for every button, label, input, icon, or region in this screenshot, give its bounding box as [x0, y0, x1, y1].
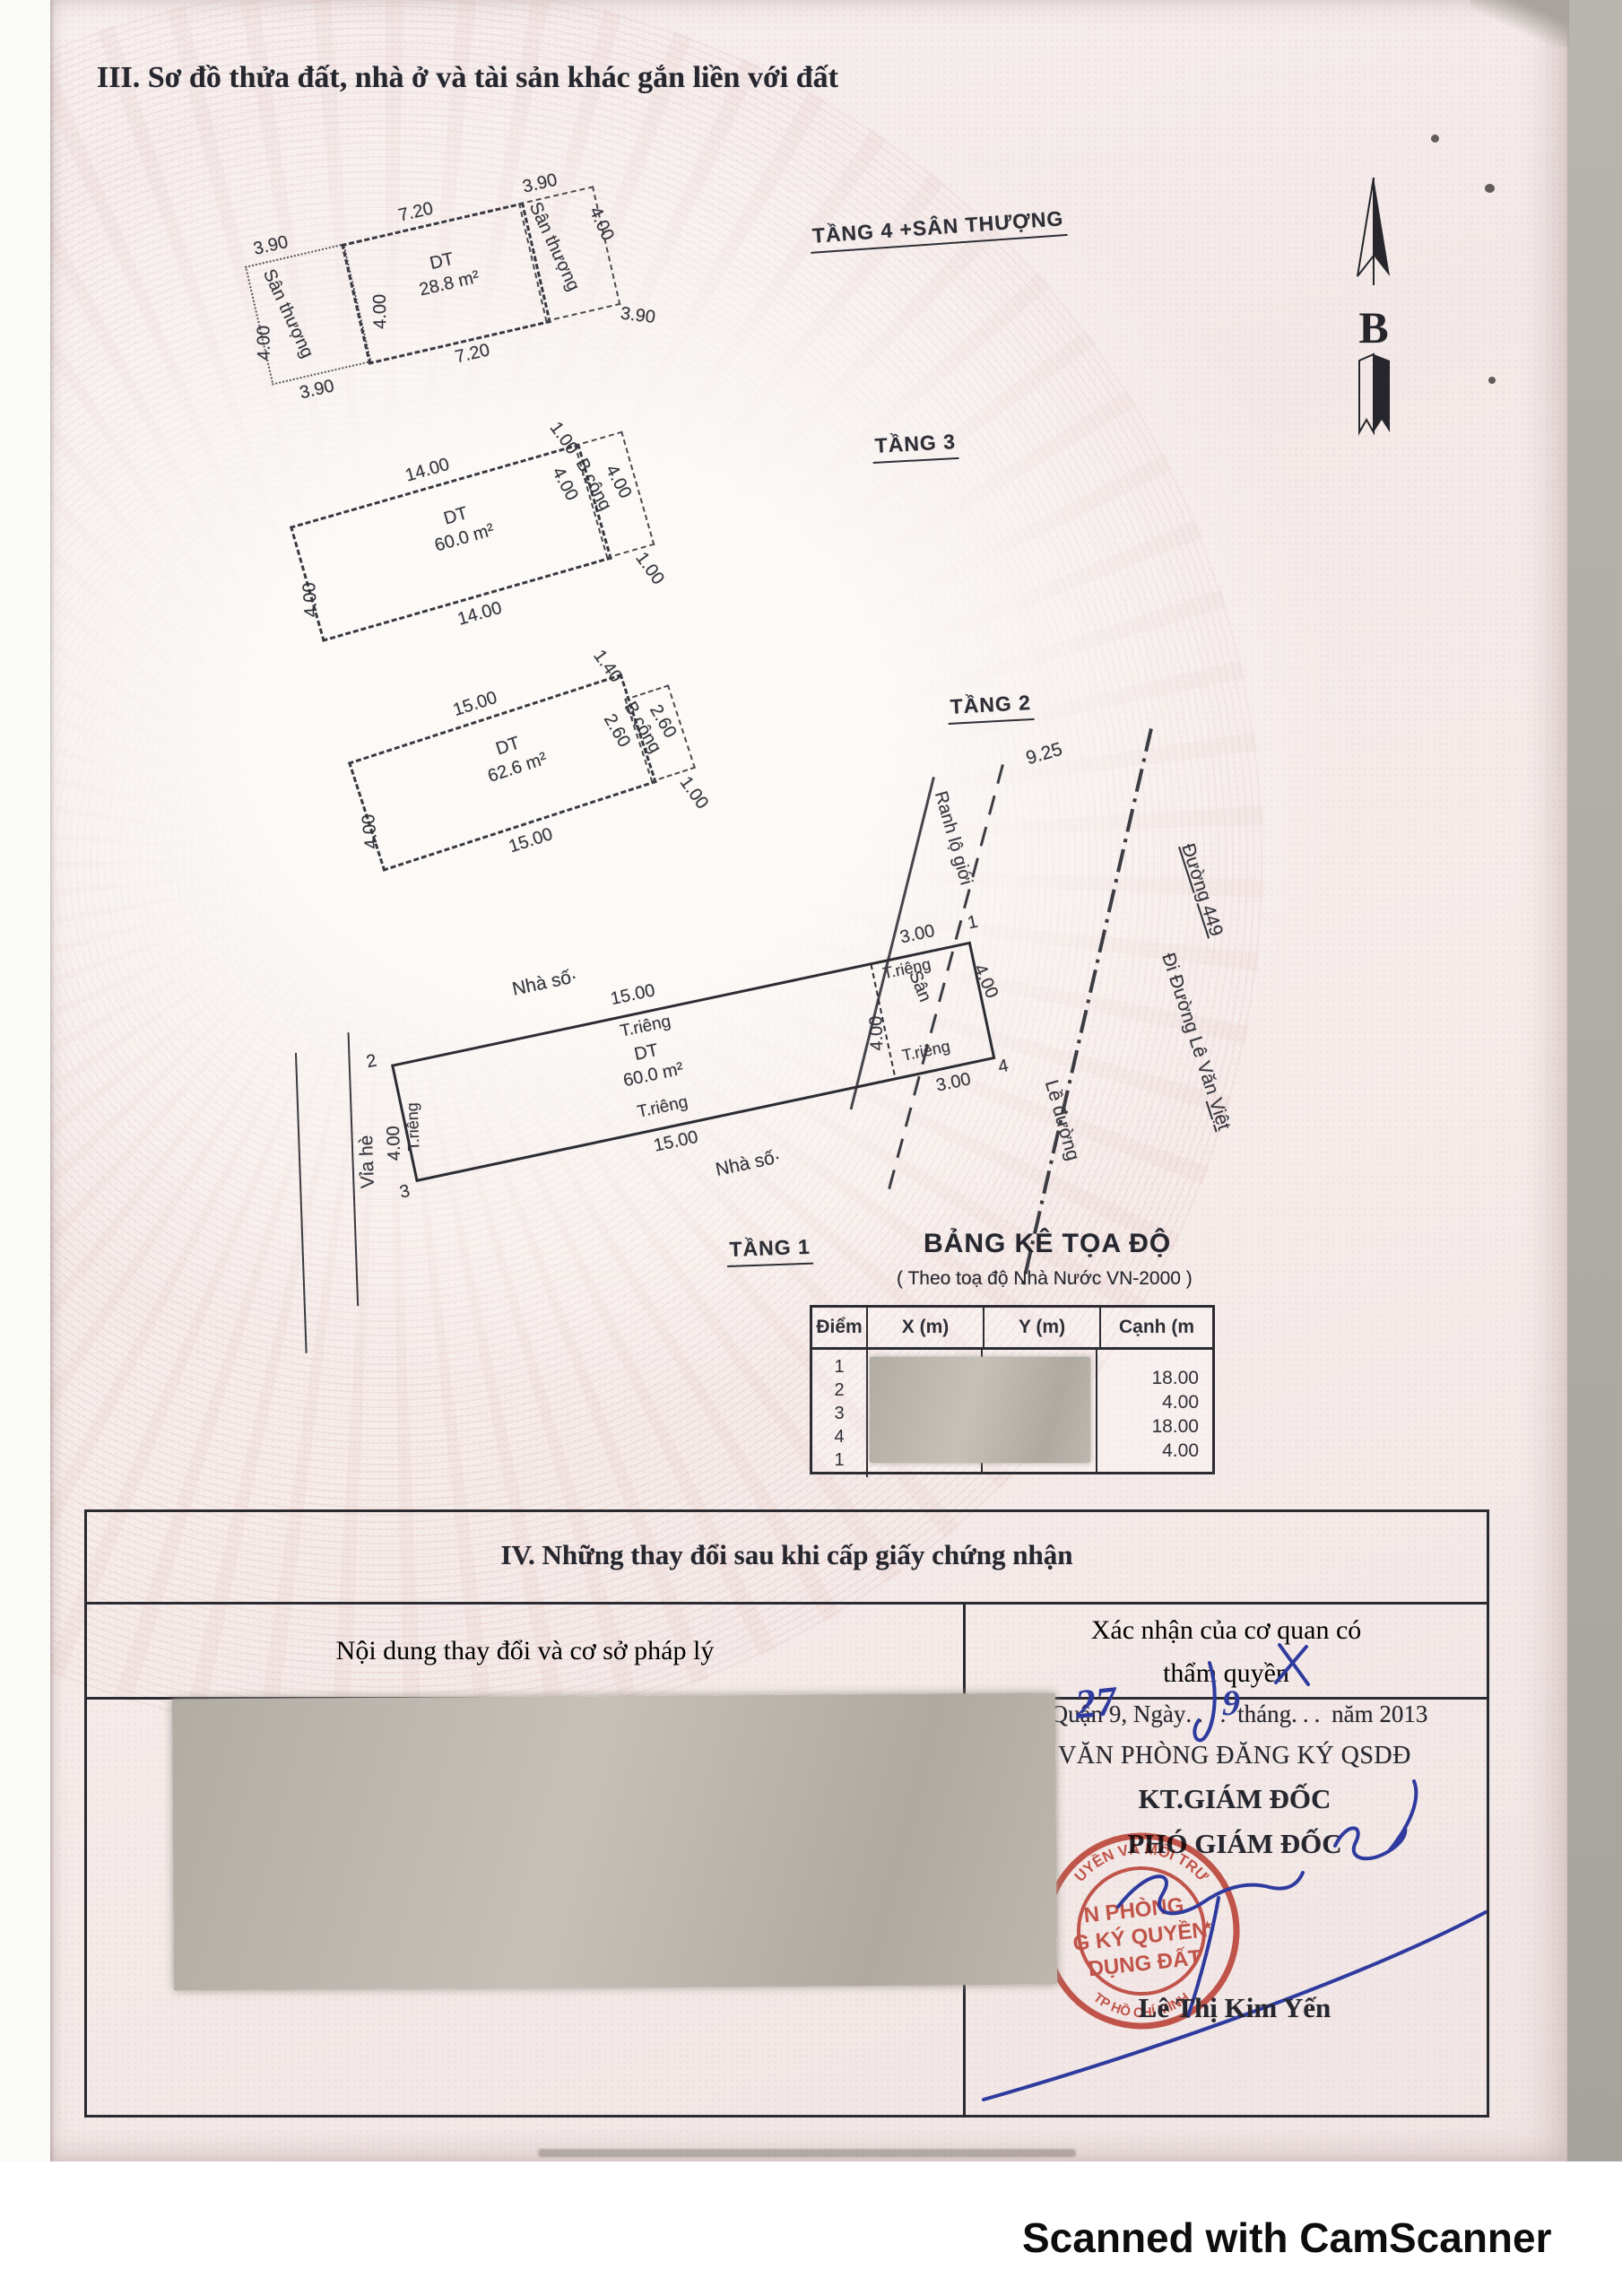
kt-giam-doc-line: KT.GIÁM ĐỐC	[984, 1783, 1486, 1815]
dim-label: 4.00	[867, 1015, 886, 1051]
dim-label: 4.00	[360, 813, 381, 850]
camscanner-band: Scanned with CamScanner	[0, 2161, 1622, 2296]
coord-table-title: BẢNG KÊ TỌA ĐỘ	[924, 1229, 1157, 1259]
area-dt-label: DT	[633, 1041, 660, 1064]
edge-row: 18.00	[1096, 1414, 1199, 1439]
date-suffix: năm 2013	[1331, 1700, 1427, 1727]
signer-name: Lê Thị Kim Yến	[1019, 1992, 1450, 2024]
coord-table-body: 1 2 3 4 1 18.00 4.00 18.00 4.00	[812, 1350, 1212, 1472]
redacted-coordinates	[870, 1357, 1090, 1463]
dim-label: 4.00	[255, 326, 273, 361]
col2-header-line1: Xác nhận của cơ quan có	[966, 1609, 1487, 1652]
tang1-floor-label: TẦNG 1	[726, 1235, 813, 1267]
col1-header: Nội dung thay đổi và cơ sở pháp lý	[87, 1605, 966, 1697]
north-arrow-head-filled	[1374, 178, 1390, 276]
camscanner-watermark: Scanned with CamScanner	[1022, 2213, 1614, 2262]
point-row: 4	[812, 1425, 866, 1448]
north-label: B	[1358, 302, 1388, 352]
point-row: 3	[812, 1402, 866, 1425]
col-header-x: X (m)	[868, 1308, 984, 1347]
point-row: 2	[812, 1378, 866, 1402]
point-numbers: 1 2 3 4 1	[812, 1350, 868, 1477]
section4-title-row: IV. Những thay đổi sau khi cấp giấy chứn…	[87, 1512, 1487, 1605]
edge-row: 4.00	[1096, 1439, 1199, 1463]
office-line: VĂN PHÒNG ĐĂNG KÝ QSDĐ	[984, 1742, 1486, 1770]
scan-corner-shadow	[1470, 0, 1569, 47]
col-header-diem: Điểm	[812, 1308, 868, 1347]
section4-title: IV. Những thay đổi sau khi cấp giấy chứn…	[87, 1539, 1487, 1571]
coord-table: Điểm X (m) Y (m) Cạnh (m 1 2 3 4 1 18.00	[810, 1305, 1215, 1474]
dim-label: 4.00	[385, 1126, 403, 1161]
place-date-line: Quận 9, Ngày.... tháng... năm 2013	[1002, 1700, 1477, 1728]
dim-label: 4.00	[300, 582, 321, 618]
coord-table-header-row: Điểm X (m) Y (m) Cạnh (m	[812, 1308, 1212, 1350]
point-row: 1	[812, 1355, 866, 1378]
scan-speck	[1431, 135, 1439, 143]
edge-row: 18.00	[1096, 1366, 1199, 1390]
col2-header: Xác nhận của cơ quan có thẩm quyền	[966, 1605, 1487, 1697]
date-prefix: Quận 9, Ngày	[1051, 1700, 1186, 1727]
scan-speck	[1488, 377, 1496, 384]
dim-label: 4.00	[371, 294, 390, 329]
north-arrow: B	[1338, 170, 1409, 448]
col-header-canh: Cạnh (m	[1101, 1308, 1212, 1347]
scan-left-margin	[0, 0, 50, 2161]
scan-light-area	[50, 54, 1350, 1399]
sidewalk-label: Vỉa hè	[357, 1135, 377, 1188]
section3-title: III. Sơ đồ thửa đất, nhà ở và tài sản kh…	[97, 61, 838, 95]
col2-header-line2: thẩm quyền	[966, 1652, 1487, 1695]
coord-table-subtitle: ( Theo toạ độ Nhà Nước VN-2000 )	[897, 1268, 1184, 1290]
col-header-y: Y (m)	[984, 1308, 1101, 1347]
section4-header-row: Nội dung thay đổi và cơ sở pháp lý Xác n…	[87, 1605, 1487, 1700]
point-row: 1	[812, 1448, 866, 1472]
redacted-content-block	[172, 1693, 1057, 1991]
scanned-page: III. Sơ đồ thửa đất, nhà ở và tài sản kh…	[0, 0, 1622, 2296]
tang3-floor-label: TẦNG 3	[872, 430, 959, 464]
wall-type-label: T.riêng	[404, 1102, 422, 1152]
scan-speck	[1485, 184, 1495, 193]
edge-row: 4.00	[1096, 1390, 1199, 1414]
page-bottom-edge-shadow	[538, 2149, 1076, 2157]
stamp-star-icon: ★	[1201, 1918, 1214, 1933]
edge-lengths: 18.00 4.00 18.00 4.00	[1096, 1350, 1210, 1472]
date-thang: tháng	[1237, 1700, 1291, 1727]
section4-table: IV. Những thay đổi sau khi cấp giấy chứn…	[84, 1509, 1489, 2118]
dim-label: 3.90	[620, 305, 656, 327]
tang2-floor-label: TẦNG 2	[947, 691, 1035, 725]
